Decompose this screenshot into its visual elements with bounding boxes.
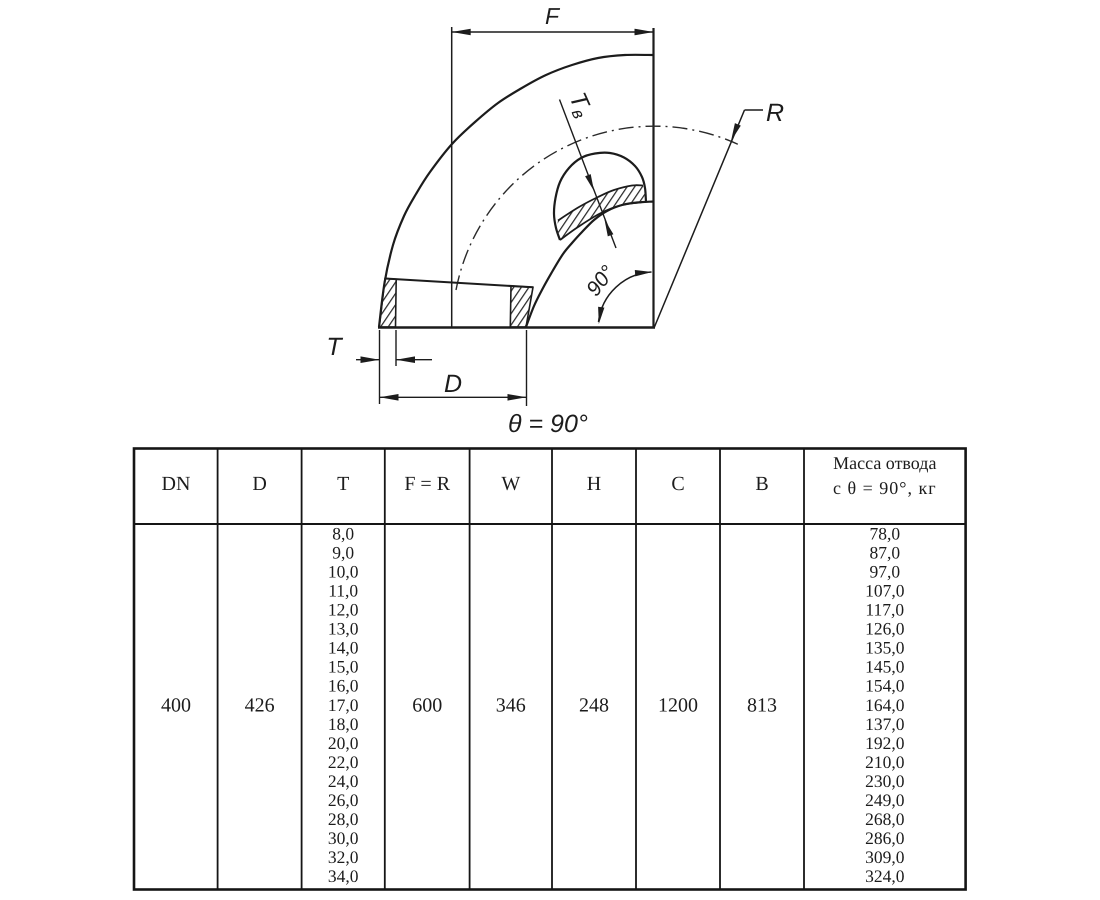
- svg-text:T: T: [337, 473, 349, 495]
- svg-text:D: D: [444, 370, 462, 398]
- svg-text:8,0: 8,0: [332, 523, 354, 543]
- svg-text:1200: 1200: [658, 695, 698, 717]
- svg-text:17,0: 17,0: [328, 695, 359, 715]
- svg-text:78,0: 78,0: [869, 523, 900, 543]
- svg-text:22,0: 22,0: [328, 752, 359, 772]
- svg-text:10,0: 10,0: [328, 561, 359, 581]
- svg-text:813: 813: [747, 695, 777, 717]
- svg-text:210,0: 210,0: [865, 752, 905, 772]
- svg-text:600: 600: [412, 695, 442, 717]
- svg-text:T: T: [326, 333, 343, 361]
- svg-text:28,0: 28,0: [328, 809, 359, 829]
- svg-text:145,0: 145,0: [865, 657, 905, 677]
- svg-text:с θ = 90°, кг: с θ = 90°, кг: [833, 478, 937, 498]
- svg-text:192,0: 192,0: [865, 733, 905, 753]
- svg-text:F = R: F = R: [404, 473, 450, 495]
- svg-text:137,0: 137,0: [865, 714, 905, 734]
- svg-text:15,0: 15,0: [328, 657, 359, 677]
- svg-text:97,0: 97,0: [869, 561, 900, 581]
- svg-text:B: B: [755, 473, 768, 495]
- svg-text:135,0: 135,0: [865, 638, 905, 658]
- svg-text:400: 400: [161, 695, 191, 717]
- svg-text:14,0: 14,0: [328, 638, 359, 658]
- svg-text:F: F: [545, 3, 561, 29]
- svg-text:30,0: 30,0: [328, 828, 359, 848]
- svg-text:268,0: 268,0: [865, 809, 905, 829]
- svg-text:248: 248: [579, 695, 609, 717]
- svg-text:C: C: [671, 473, 684, 495]
- svg-text:H: H: [587, 473, 601, 495]
- svg-text:20,0: 20,0: [328, 733, 359, 753]
- svg-text:154,0: 154,0: [865, 676, 905, 696]
- svg-text:32,0: 32,0: [328, 847, 359, 867]
- svg-text:117,0: 117,0: [865, 600, 904, 620]
- svg-text:11,0: 11,0: [328, 581, 358, 601]
- svg-text:249,0: 249,0: [865, 790, 905, 810]
- svg-text:DN: DN: [162, 473, 191, 495]
- svg-text:426: 426: [245, 695, 275, 717]
- svg-text:126,0: 126,0: [865, 619, 905, 639]
- svg-text:W: W: [501, 473, 520, 495]
- svg-text:16,0: 16,0: [328, 676, 359, 696]
- svg-text:346: 346: [496, 695, 526, 717]
- svg-text:309,0: 309,0: [865, 847, 905, 867]
- svg-text:R: R: [766, 99, 784, 127]
- svg-text:26,0: 26,0: [328, 790, 359, 810]
- svg-text:107,0: 107,0: [865, 581, 905, 601]
- svg-text:230,0: 230,0: [865, 771, 905, 791]
- svg-text:12,0: 12,0: [328, 600, 359, 620]
- svg-text:Масса отвода: Масса отвода: [833, 453, 936, 473]
- svg-text:164,0: 164,0: [865, 695, 905, 715]
- svg-text:324,0: 324,0: [865, 866, 905, 886]
- svg-text:34,0: 34,0: [328, 866, 359, 886]
- svg-text:87,0: 87,0: [869, 542, 900, 562]
- svg-text:D: D: [252, 473, 266, 495]
- svg-text:13,0: 13,0: [328, 619, 359, 639]
- svg-text:9,0: 9,0: [332, 542, 354, 562]
- svg-text:286,0: 286,0: [865, 828, 905, 848]
- svg-text:24,0: 24,0: [328, 771, 359, 791]
- svg-text:θ = 90°: θ = 90°: [508, 410, 588, 438]
- svg-text:18,0: 18,0: [328, 714, 359, 734]
